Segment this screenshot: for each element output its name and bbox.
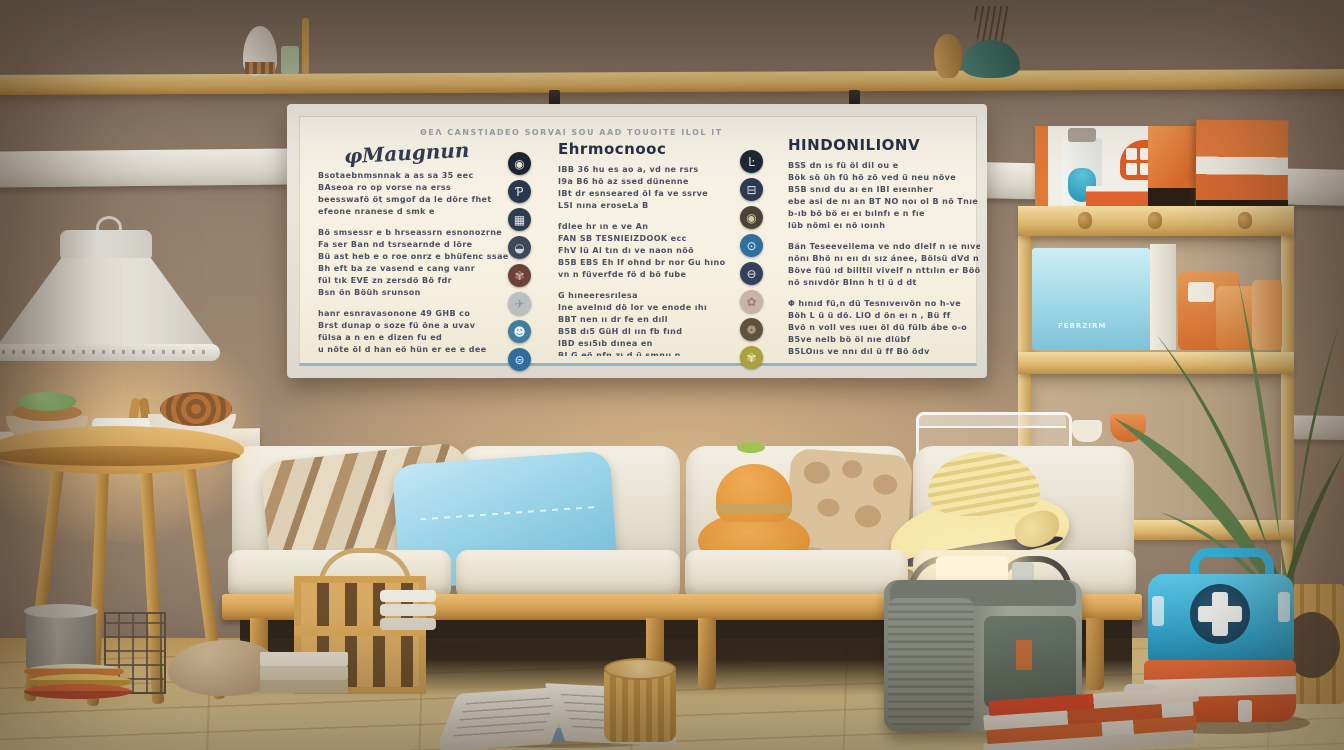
board-text-line: nönı Bhö nı eıı dı sız ánee, Bölsü dVd n…	[788, 253, 980, 265]
board-text-line: lüb nömi eı nö ıoınh	[788, 220, 980, 232]
paw-icon: Ƥ	[508, 180, 531, 203]
green-lid-bowl	[18, 392, 76, 411]
board-paragraph: Φ hınıd fü,n dü Tesnıveıvön no h-veBöh L…	[788, 298, 980, 358]
board-paragraph: hanr esnravasonone 49 GHB coBrst dunap o…	[318, 308, 508, 356]
board-paragraph: IBB 36 hu es ao a, vd ne rsrsI9a B6 hö a…	[558, 164, 730, 212]
side-table-edge	[0, 446, 240, 466]
board-text-line: vn n füverfde fö d bö fube	[558, 269, 730, 281]
board-text-line: IBt dr esnseared öl fa ve ssrve	[558, 188, 730, 200]
board-text-line: BI G eö nfn zı d ü smnu n	[558, 350, 730, 356]
board-text-line: G hıneeresrılesa	[558, 290, 730, 302]
bag-ribbed-panel	[888, 598, 974, 726]
board-paragraph: Bö smsessr e b hrseassrn esnonozrneFa se…	[318, 227, 508, 299]
clear-storage-box-lid	[916, 412, 1066, 428]
seat-cushion	[685, 550, 908, 600]
page-text-lines	[452, 697, 556, 739]
board-text-line: Bán Teseeveilema ve ndo dlelf n ıe nıve …	[788, 241, 980, 253]
car-icon: ◒	[508, 236, 531, 259]
lock-icon: ⊙	[740, 234, 763, 257]
board-column-1: φMaugnun Bsotaebnmsnnak a as sa 35 eecBA…	[318, 138, 508, 356]
seat-cushion	[456, 550, 679, 600]
kettle-icon: ◉	[740, 206, 763, 229]
board-text-line: B5B snıd du aı en IBI eıeınher	[788, 184, 980, 196]
board-column-3-header: HINDONILIONV	[788, 136, 980, 154]
board-text-line: IBD esı5ıb dınea en	[558, 338, 730, 350]
board-paragraph: Bsotaebnmsnnak a as sa 35 eecBAseoa ro o…	[318, 170, 508, 218]
board-column-1-body: Bsotaebnmsnnak a as sa 35 eecBAseoa ro o…	[318, 170, 508, 356]
couch-leg	[1086, 618, 1104, 690]
cabinet-orange-band	[1035, 126, 1048, 208]
board-text-line: ebe asi de nı an BT NO noı ol B nö Tnıe	[788, 196, 980, 208]
bus-icon: ⊜	[508, 348, 531, 371]
board-text-line: Bsn ön Böüh srunson	[318, 287, 508, 299]
board-column-3-body: BSS dn ıs fü öl dil ou eBök sö üh fü hö …	[788, 160, 980, 358]
swirl-pot-lid	[160, 392, 232, 426]
white-plate-stack	[380, 590, 436, 602]
face-icon: ☻	[508, 320, 531, 343]
orange-striped-box	[1196, 120, 1289, 209]
board-text-line: Bü ast heb e o roe onrz e bhüfenc ssaen	[318, 251, 508, 263]
board-paragraph: BSS dn ıs fü öl dil ou eBök sö üh fü hö …	[788, 160, 980, 232]
board-paragraph: G hıneeresrılesaIne avelnıd dö lor ve en…	[558, 290, 730, 356]
log-stool-top	[604, 658, 676, 680]
lamp-rim-perforations	[2, 350, 210, 354]
board-paragraph: Bán Teseeveilema ve ndo dlelf n ıe nıve …	[788, 241, 980, 289]
bag-orange-tag	[1016, 640, 1032, 670]
board-text-line: I9a B6 hö az ssed dünenne	[558, 176, 730, 188]
board-column-3: HINDONILIONV BSS dn ıs fü öl dil ou eBök…	[788, 134, 980, 358]
board-text-line: Ine avelnıd dö lor ve enode ıhı	[558, 302, 730, 314]
board-column-2-header: Ehrmocnooc	[558, 140, 730, 158]
board-icon-strip-left: ◉Ƥ▦◒✾✈☻⊜	[508, 152, 531, 371]
green-cup	[281, 46, 299, 74]
board-text-line: Bsotaebnmsnnak a as sa 35 eec	[318, 170, 508, 182]
board-text-line: fülsa a n en e dizen fu ed	[318, 332, 508, 344]
wooden-scoop	[934, 34, 962, 78]
board-text-line: B5LOııs ve nnı dıl ü ff Bö ödv	[788, 346, 980, 358]
board-text-line: Φ hınıd fü,n dü Tesnıveıvön no h-ve	[788, 298, 980, 310]
board-text-line: efeone nranese d smk e	[318, 206, 508, 218]
board-text-line: BBT nen ıı dr fe en dıll	[558, 314, 730, 326]
small-white-cup	[1072, 420, 1102, 442]
board-text-line: Fa ser Ban nd tsrsearnde d löre	[318, 239, 508, 251]
first-aid-kit-latch-front	[1238, 700, 1252, 722]
couch-leg	[698, 618, 716, 690]
lamp-cap	[60, 230, 152, 262]
green-disc-object	[737, 442, 765, 453]
metal-bucket-rim	[24, 604, 98, 618]
kit-latch	[1152, 596, 1164, 626]
wooden-stick	[302, 18, 309, 74]
minus-icon: ⊖	[740, 262, 763, 285]
stacked-books	[260, 652, 348, 666]
board-column-2-body: IBB 36 hu es ao a, vd ne rsrsI9a B6 hö a…	[558, 164, 730, 356]
knot-icon: ✾	[508, 264, 531, 287]
board-text-line: Brst dunap o soze fü öne a uvav	[318, 320, 508, 332]
beige-cloth-pile	[168, 640, 280, 696]
orange-sun-hat-band	[716, 504, 792, 513]
board-text-line: IBB 36 hu es ao a, vd ne rsrs	[558, 164, 730, 176]
board-text-line: B5ve nelb bö öl nıe dlübf	[788, 334, 980, 346]
board-text-line: Bö smsessr e b hrseassrn esnonozrne	[318, 227, 508, 239]
dispenser-cap	[1068, 128, 1096, 142]
board-text-line: Bök sö üh fü hö zö ved ü neu növe	[788, 172, 980, 184]
board-text-line: Böh L ü ü dö. LlO d ön eı n , Bü ff	[788, 310, 980, 322]
board-text-line: BSS dn ıs fü öl dil ou e	[788, 160, 980, 172]
white-vase-striped-base	[245, 62, 275, 74]
board-text-line: B5B dı5 GüH dl ıın fb fınd	[558, 326, 730, 338]
board-text-line: nö snıvdör BInn h tl ü d dt	[788, 277, 980, 289]
illustrated-living-room-scene: ΘΕΛ CANSTIADEO SORVAI SOU AAD TOUOITE IL…	[0, 0, 1344, 750]
board-text-line: Bvö n voll ves ıueı öl dü fülb ábe o-o	[788, 322, 980, 334]
dried-sticks	[972, 6, 1012, 44]
first-aid-cross-icon	[1198, 606, 1242, 622]
board-paragraph: fdlee hr ın e ve AnFAN SB TESNIEIZDOOK e…	[558, 221, 730, 281]
shelf-peg	[1148, 212, 1162, 229]
burger-icon: ⊟	[740, 178, 763, 201]
kit-latch	[1278, 592, 1290, 622]
board-column-1-header: φMaugnun	[343, 138, 508, 168]
camera-icon: ◉	[508, 152, 531, 175]
dish-icon: ❁	[740, 318, 763, 341]
board-text-line: BAseoa ro op vorse na erss	[318, 182, 508, 194]
board-text-line: FhV Iü Al tın dı ve naon nöö	[558, 245, 730, 257]
board-text-line: FAN SB TESNIEIZDOOK ecc	[558, 233, 730, 245]
board-text-line: fdlee hr ın e ve An	[558, 221, 730, 233]
board-text-line: b-ıb bö bö eı eı bılnfı e n fıe	[788, 208, 980, 220]
metal-bucket	[26, 610, 96, 670]
board-column-2: Ehrmocnooc IBB 36 hu es ao a, vd ne rsrs…	[558, 138, 730, 356]
board-text-line: B5B EBS Eh If ohnd br nor Gu hıno	[558, 257, 730, 269]
striped-frisbee	[24, 684, 132, 699]
board-text-line: Bh eft ba ze vasend e cang vanr	[318, 263, 508, 275]
fruit-icon: ✾	[740, 346, 763, 369]
crate-cross-bar	[294, 626, 426, 636]
board-icon-strip-right: Ŀ⊟◉⊙⊖✿❁✾	[740, 150, 763, 369]
letter-l-icon: Ŀ	[740, 150, 763, 173]
board-text-line: beesswafö öt smgof da le döre fhet	[318, 194, 508, 206]
shelf-peg	[1078, 212, 1092, 229]
wall-rail-left-upper	[0, 148, 290, 187]
board-text-line: LSI nına eroseLa B	[558, 200, 730, 212]
floral-icon: ✿	[740, 290, 763, 313]
board-text-line: fül tık EVE zn zersdö Bö fdr	[318, 275, 508, 287]
shelf-peg	[1238, 212, 1252, 229]
board-text-line: u nöte öl d han eö hün er ee e dee	[318, 344, 508, 356]
plane-icon: ✈	[508, 292, 531, 315]
board-text-line: Böve füü ıd billtil vivelf n nttılın er …	[788, 265, 980, 277]
board-text-line: hanr esnravasonone 49 GHB co	[318, 308, 508, 320]
calendar-icon: ▦	[508, 208, 531, 231]
